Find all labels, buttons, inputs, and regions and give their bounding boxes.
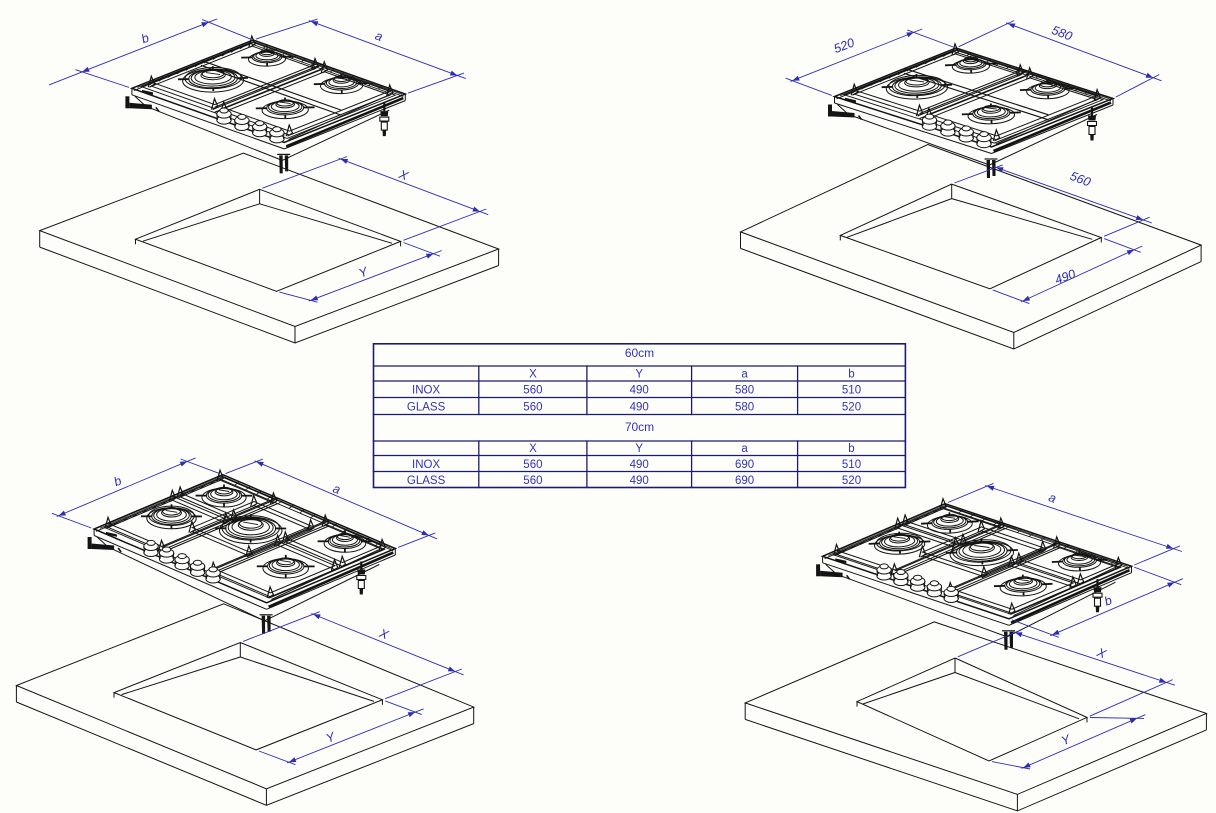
svg-text:490: 490 (630, 402, 649, 414)
svg-text:510: 510 (842, 385, 861, 397)
svg-text:Y: Y (635, 369, 643, 381)
svg-text:560: 560 (523, 402, 542, 414)
svg-text:560: 560 (523, 475, 542, 487)
svg-text:520: 520 (842, 475, 861, 487)
svg-text:690: 690 (735, 475, 754, 487)
svg-text:490: 490 (630, 385, 649, 397)
svg-text:490: 490 (630, 459, 649, 471)
svg-text:b: b (848, 369, 854, 381)
svg-text:INOX: INOX (412, 459, 440, 471)
svg-text:GLASS: GLASS (407, 475, 446, 487)
svg-text:70cm: 70cm (625, 420, 654, 434)
svg-text:690: 690 (735, 459, 754, 471)
svg-text:X: X (529, 443, 537, 455)
svg-text:520: 520 (842, 402, 861, 414)
svg-text:INOX: INOX (412, 385, 440, 397)
svg-text:580: 580 (735, 385, 754, 397)
svg-text:580: 580 (735, 402, 754, 414)
svg-text:60cm: 60cm (625, 346, 654, 360)
svg-text:510: 510 (842, 459, 861, 471)
svg-text:490: 490 (630, 475, 649, 487)
svg-text:a: a (741, 369, 748, 381)
svg-text:560: 560 (523, 459, 542, 471)
svg-text:Y: Y (635, 443, 643, 455)
svg-text:a: a (741, 443, 748, 455)
svg-text:560: 560 (523, 385, 542, 397)
svg-text:GLASS: GLASS (407, 402, 446, 414)
svg-text:X: X (529, 369, 537, 381)
svg-text:b: b (848, 443, 854, 455)
